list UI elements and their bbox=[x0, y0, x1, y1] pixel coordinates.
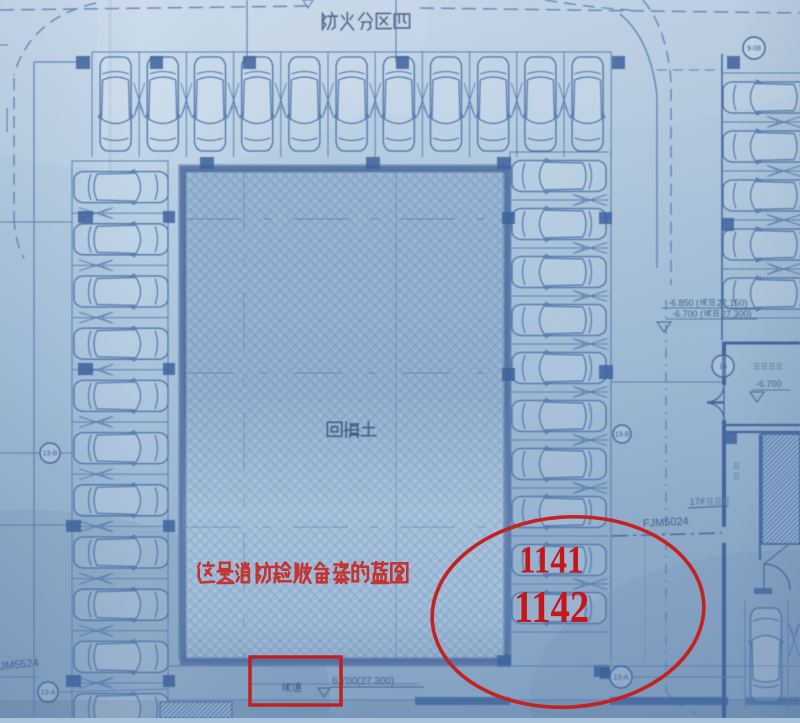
svg-text:-6.850 (: -6.850 ( bbox=[668, 298, 699, 308]
svg-text:27.150): 27.150) bbox=[717, 298, 748, 308]
svg-text:27.300): 27.300) bbox=[721, 309, 752, 319]
svg-text:13-A: 13-A bbox=[41, 690, 56, 697]
svg-text:13-A: 13-A bbox=[614, 675, 629, 682]
svg-text:15: 15 bbox=[719, 364, 727, 371]
svg-text:-6.700 (: -6.700 ( bbox=[672, 309, 703, 319]
svg-text:1141: 1141 bbox=[519, 538, 584, 581]
svg-text:17#: 17# bbox=[689, 496, 705, 507]
svg-text:9-08: 9-08 bbox=[747, 46, 761, 53]
svg-text:FJM5024: FJM5024 bbox=[643, 516, 689, 530]
svg-text:-6.700: -6.700 bbox=[756, 379, 782, 389]
svg-text:13-B: 13-B bbox=[43, 451, 58, 458]
svg-text:13-B: 13-B bbox=[615, 432, 630, 439]
svg-text:1142: 1142 bbox=[514, 582, 589, 633]
